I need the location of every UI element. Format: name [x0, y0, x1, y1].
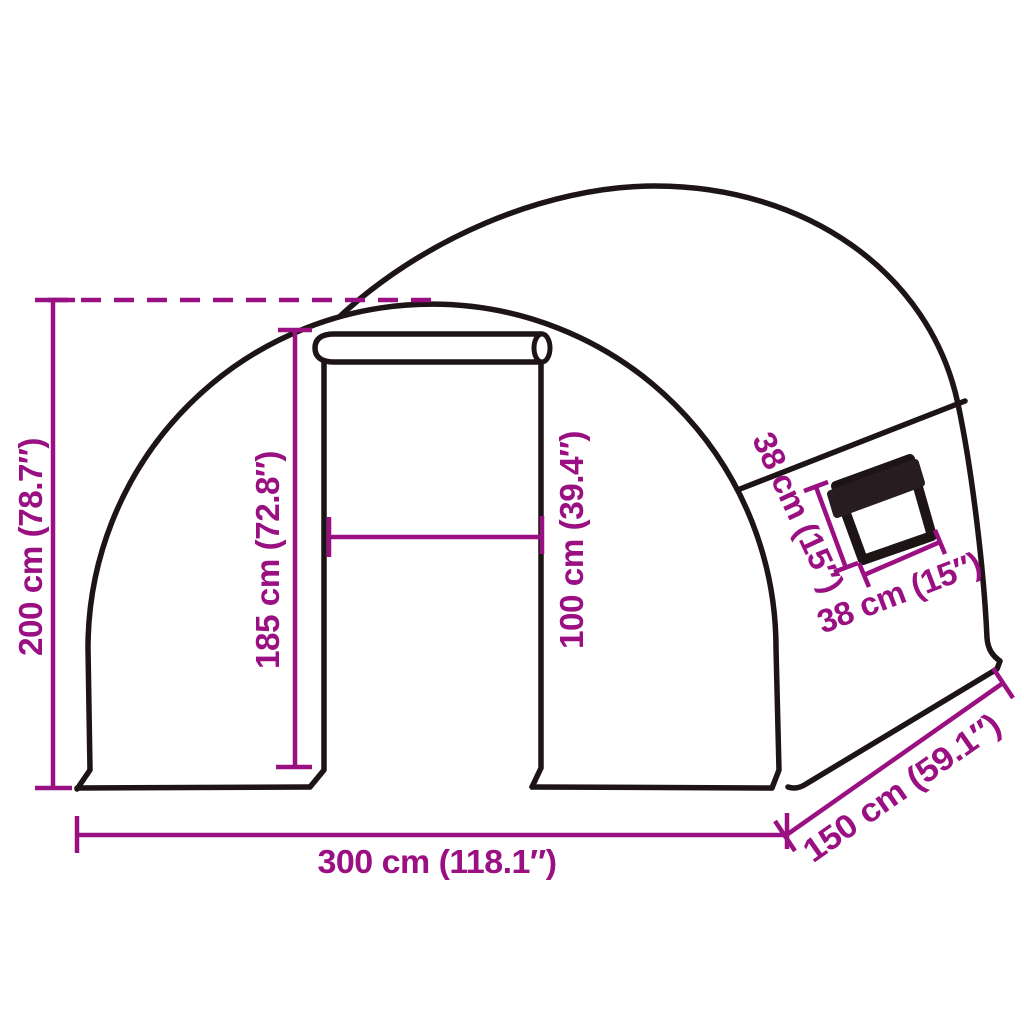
total-depth-label: 150 cm (59.1″) [796, 706, 1007, 869]
tick-mark [993, 668, 1013, 698]
product-outline-group [77, 186, 1000, 789]
greenhouse-dimension-diagram: 200 cm (78.7″) 185 cm (72.8″) 100 cm (39… [0, 0, 1024, 1024]
door-roll-end-cap [534, 334, 550, 362]
front-face-fill [77, 304, 779, 789]
front-bottom-edge-left [77, 787, 310, 788]
door-height-label: 185 cm (72.8″) [249, 451, 286, 669]
total-depth-dimension [775, 668, 1013, 851]
front-bottom-edge-right [532, 787, 772, 788]
diagram-svg: 200 cm (78.7″) 185 cm (72.8″) 100 cm (39… [0, 0, 1024, 1024]
total-width-label: 300 cm (118.1″) [318, 843, 557, 880]
total-height-label: 200 cm (78.7″) [12, 438, 49, 656]
door-width-label: 100 cm (39.4″) [553, 431, 590, 649]
